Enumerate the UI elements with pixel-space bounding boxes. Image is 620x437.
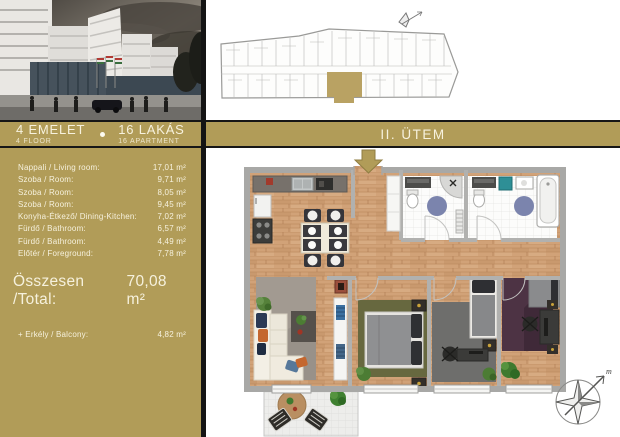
building-photo-art (0, 0, 203, 120)
apartment-count-secondary: 16 APARTMENT (118, 138, 184, 145)
room-label: Szoba / Room: (18, 187, 74, 199)
separator-dot-icon (100, 132, 105, 137)
room-table: Nappali / Living room:17,01 m²Szoba / Ro… (0, 148, 202, 437)
site-plan (206, 0, 620, 120)
room-row: Fürdő / Bathroom:4,49 m² (18, 236, 186, 248)
balcony-value: 4,82 m² (157, 330, 186, 339)
floor-plan-area: m (206, 148, 620, 437)
room-row: Konyha-Étkező/ Dining-Kitchen:7,02 m² (18, 211, 186, 223)
room-label: Előtér / Foreground: (18, 248, 93, 260)
room-value: 7,02 m² (157, 211, 186, 223)
floor-count-primary: 4 EMELET (16, 123, 85, 136)
room-label: Fürdő / Bathroom: (18, 223, 86, 235)
room-row: Fürdő / Bathroom:6,57 m² (18, 223, 186, 235)
apartment-count-primary: 16 LAKÁS (118, 123, 184, 136)
room-value: 7,78 m² (157, 248, 186, 260)
balcony-label: + Erkély / Balcony: (18, 330, 88, 339)
balcony (264, 388, 358, 436)
room-label: Szoba / Room: (18, 174, 74, 186)
floor-count: 4 EMELET 4 FLOOR (16, 123, 85, 145)
svg-text:m: m (606, 367, 612, 376)
room-row: Szoba / Room:9,71 m² (18, 174, 186, 186)
room-row: Előtér / Foreground:7,78 m² (18, 248, 186, 260)
balcony-row: + Erkély / Balcony: 4,82 m² (0, 330, 202, 339)
floor-plan: m (206, 148, 620, 437)
floor-apartment-header: 4 EMELET 4 FLOOR 16 LAKÁS 16 APARTMENT (0, 120, 202, 148)
room-label: Fürdő / Bathroom: (18, 236, 86, 248)
phase-header: II. ÜTEM (206, 120, 620, 148)
apartment-count: 16 LAKÁS 16 APARTMENT (118, 123, 184, 145)
brochure-page: 4 EMELET 4 FLOOR 16 LAKÁS 16 APARTMENT I… (0, 0, 620, 437)
room-value: 4,49 m² (157, 236, 186, 248)
total-row: Összesen /Total: 70,08 m² (0, 273, 202, 309)
room-value: 9,71 m² (157, 174, 186, 186)
total-value: 70,08 m² (127, 273, 187, 309)
room-row: Szoba / Room:9,45 m² (18, 199, 186, 211)
floor-count-secondary: 4 FLOOR (16, 138, 85, 145)
room-value: 9,45 m² (157, 199, 186, 211)
room-label: Szoba / Room: (18, 199, 74, 211)
building-photo (0, 0, 203, 120)
room-value: 17,01 m² (153, 162, 186, 174)
room-value: 6,57 m² (157, 223, 186, 235)
room-row: Nappali / Living room:17,01 m² (18, 162, 186, 174)
room-rows: Nappali / Living room:17,01 m²Szoba / Ro… (0, 162, 202, 260)
site-plan-compass-icon (399, 12, 422, 27)
phase-label: II. ÜTEM (380, 127, 445, 142)
total-label: Összesen /Total: (13, 273, 127, 309)
room-label: Nappali / Living room: (18, 162, 100, 174)
highlighted-unit (327, 72, 362, 103)
room-row: Szoba / Room:8,05 m² (18, 187, 186, 199)
master-bedroom (356, 300, 427, 389)
room-value: 8,05 m² (157, 187, 186, 199)
site-plan-drawing (206, 0, 620, 120)
room-label: Konyha-Étkező/ Dining-Kitchen: (18, 211, 137, 223)
